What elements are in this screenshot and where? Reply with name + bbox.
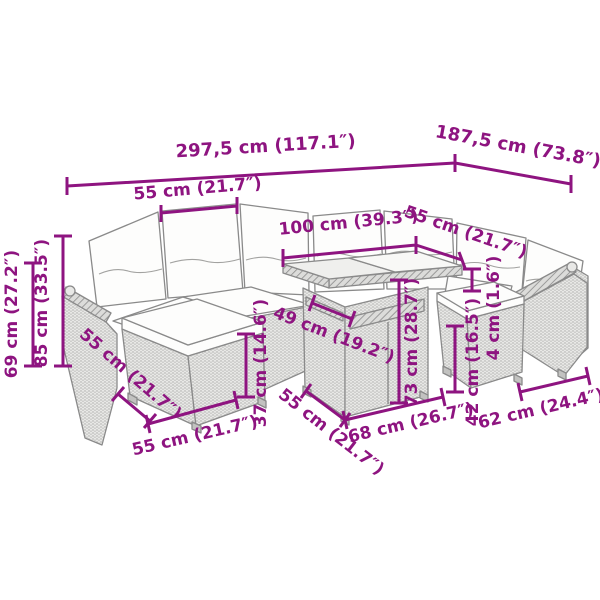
dim-stool-height-label: 42 cm (16.5″) bbox=[463, 298, 483, 426]
dim-back-cushion-width-label: 55 cm (21.7″) bbox=[133, 173, 263, 204]
dim-table-height-label: 73 cm (28.7″) bbox=[402, 278, 422, 406]
dim-total-depth: 187,5 cm (73.8″) bbox=[434, 121, 600, 193]
dim-cushion-thickness-label: 4 cm (1.6″) bbox=[484, 256, 504, 361]
dim-total-height-label: 85 cm (33.5″) bbox=[32, 239, 52, 367]
dim-seat-height-label: 37 cm (14.6″) bbox=[251, 299, 271, 427]
dim-stool-width-label: 62 cm (24.4″) bbox=[476, 385, 600, 433]
dim-total-depth-line bbox=[455, 163, 571, 193]
left-armrest-scroll bbox=[65, 286, 75, 296]
dim-armrest-height-label: 69 cm (27.2″) bbox=[2, 250, 22, 378]
furniture-dimension-diagram: 297,5 cm (117.1″) 187,5 cm (73.8″) 55 cm… bbox=[0, 0, 600, 600]
right-armrest-scroll bbox=[567, 262, 577, 272]
back-cushion-1 bbox=[89, 212, 166, 307]
dim-total-width-label: 297,5 cm (117.1″) bbox=[175, 131, 356, 163]
diagram-canvas: 297,5 cm (117.1″) 187,5 cm (73.8″) 55 cm… bbox=[0, 0, 600, 600]
back-cushion-2 bbox=[162, 204, 243, 298]
